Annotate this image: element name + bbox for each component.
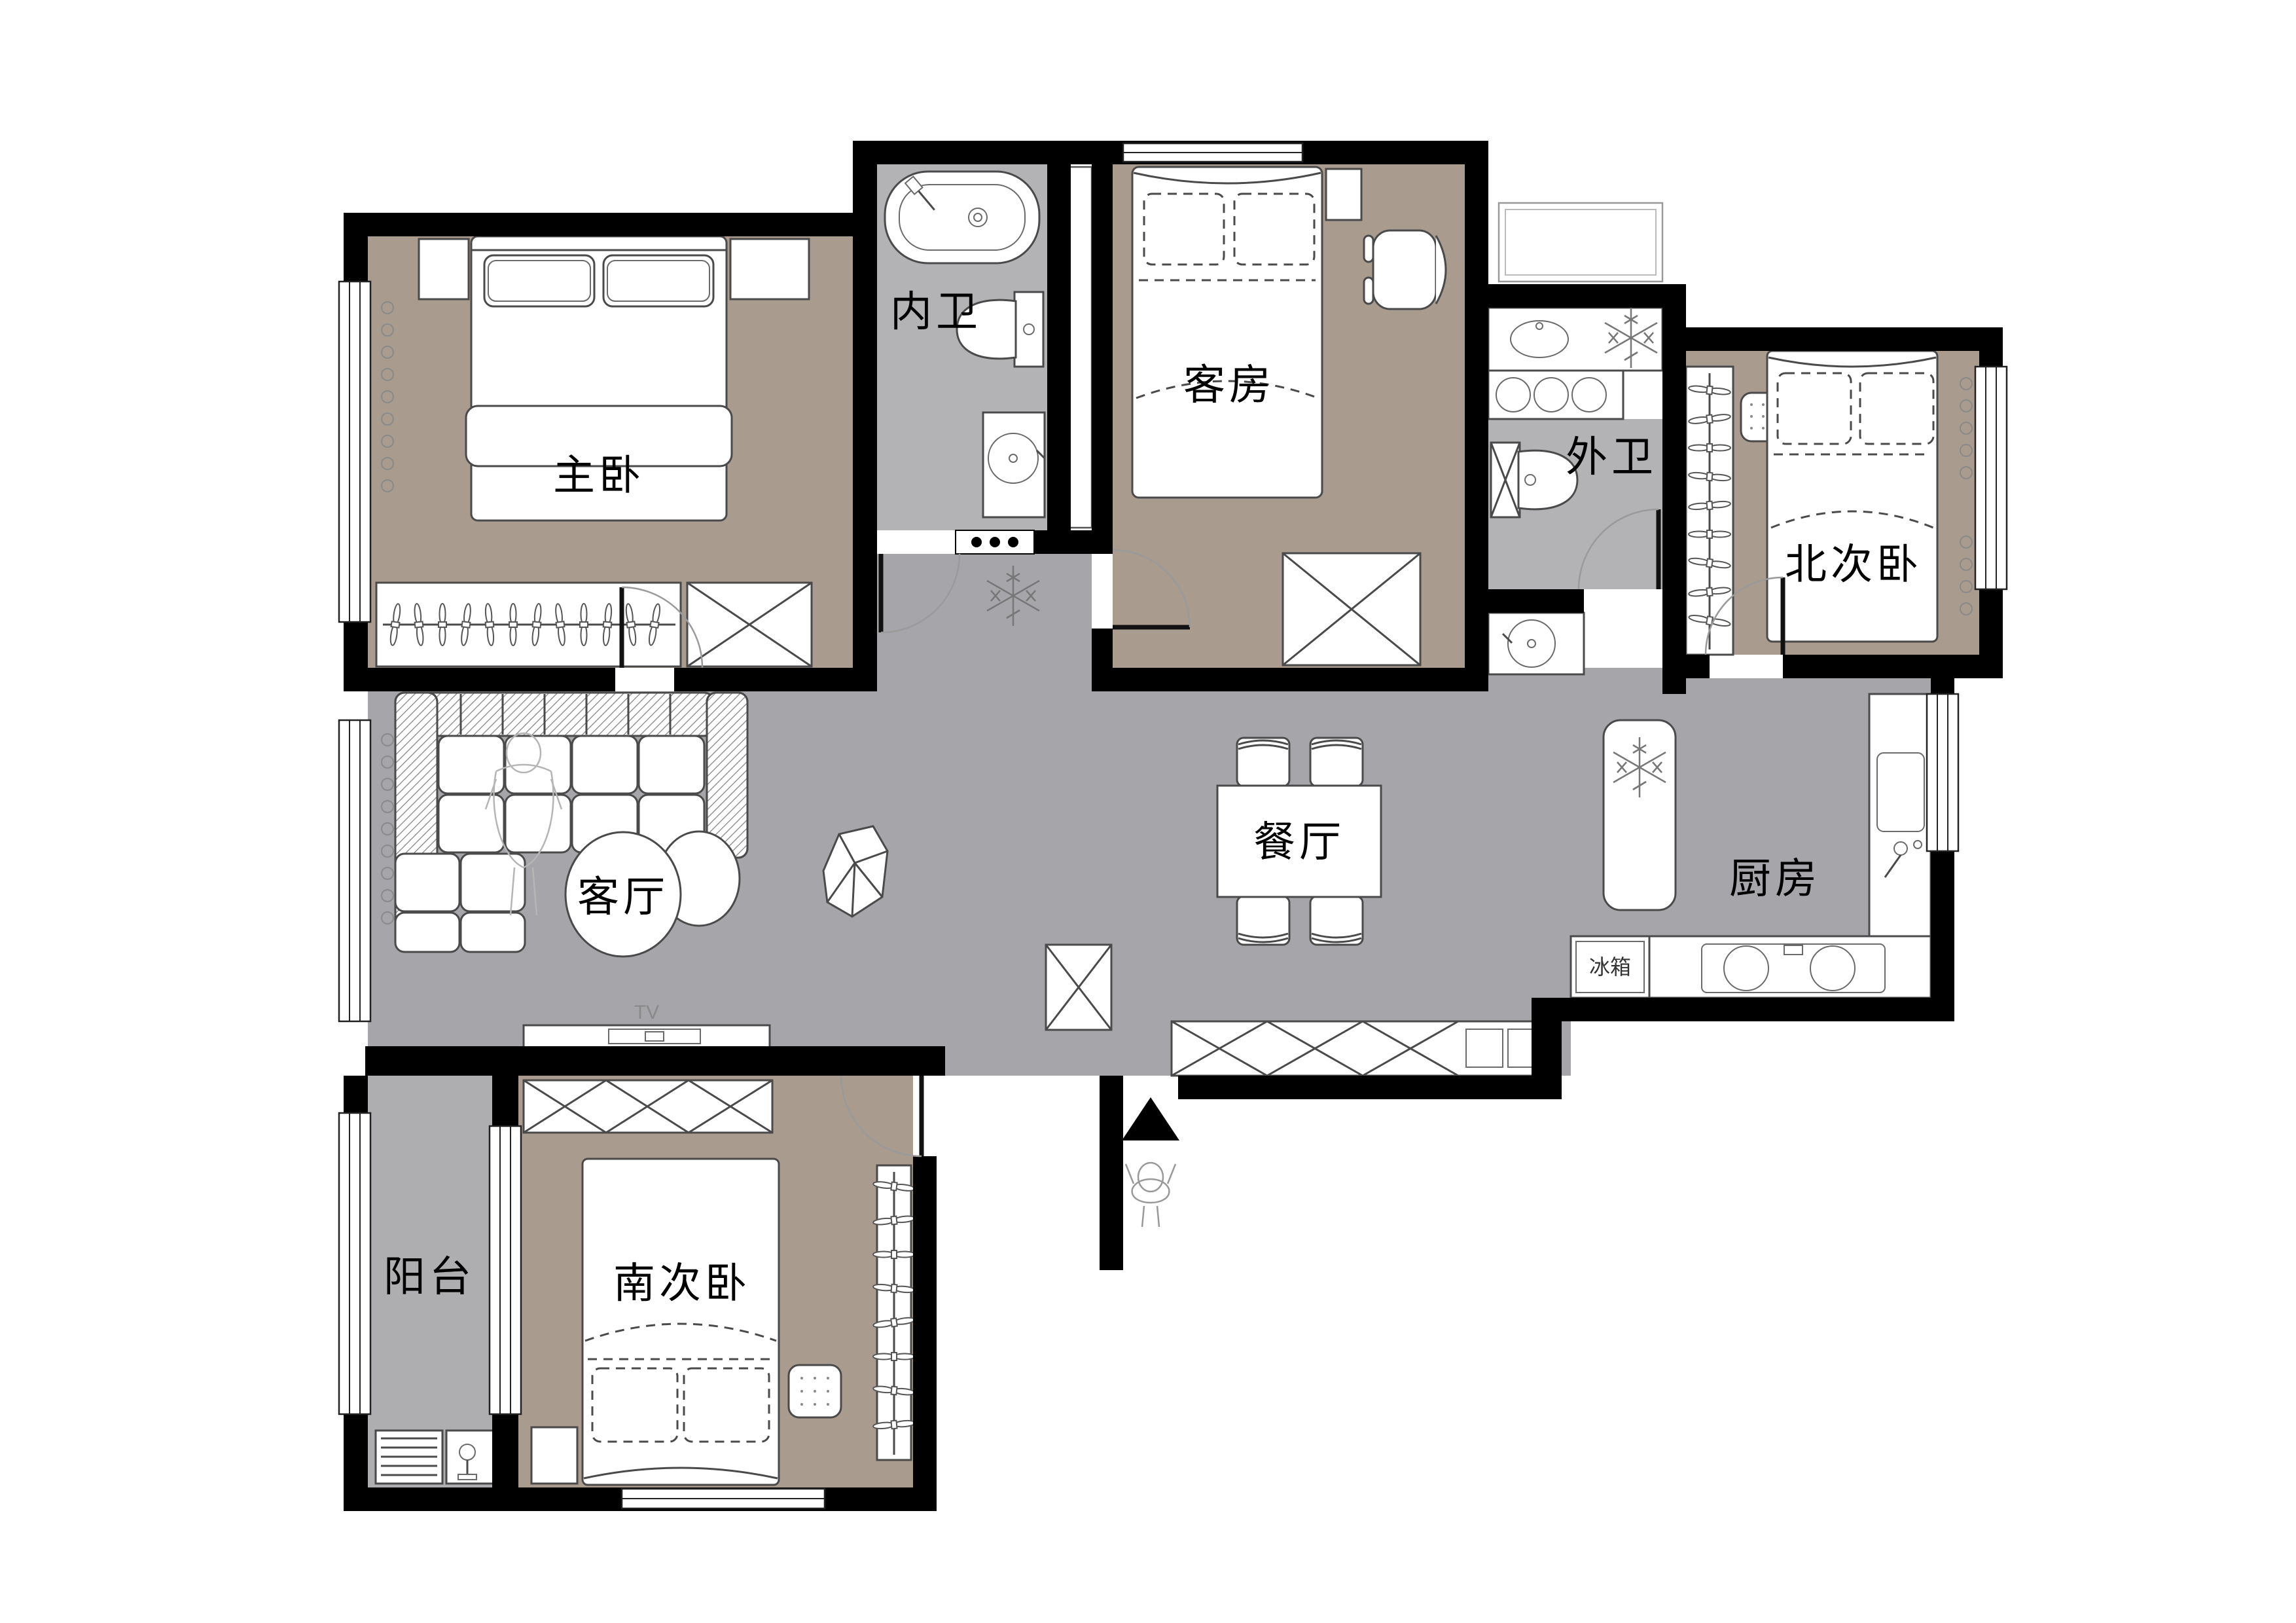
kitchen-counter-right: [1869, 694, 1931, 936]
guest-closet: [1283, 553, 1420, 665]
nightstand: [730, 239, 809, 299]
sideboard-cabinets: [1172, 1021, 1554, 1076]
tv-bench: [524, 1025, 770, 1048]
nightstand: [419, 239, 469, 299]
pouf: [789, 1365, 841, 1417]
fridge: 冰箱: [1571, 936, 1649, 998]
room-balcony: [376, 1431, 497, 1484]
person-figure: [1126, 1163, 1175, 1227]
guest-bed: [1132, 167, 1322, 498]
label-guest: 客房: [1183, 361, 1275, 409]
dining-chair: [1237, 738, 1289, 786]
single-bed: [1767, 351, 1937, 642]
wash-basin: [1488, 613, 1584, 674]
window: [622, 1489, 825, 1508]
wall-niche: [956, 530, 1034, 554]
window: [339, 282, 370, 622]
duct-shaft: [1069, 167, 1092, 528]
dining-chair: [1310, 738, 1363, 786]
label-dining: 餐厅: [1253, 818, 1345, 866]
dining-chair: [1310, 896, 1363, 945]
window: [339, 720, 370, 1021]
bedside-bench: [531, 1427, 577, 1484]
floor-plan-page: 冰箱: [0, 0, 2296, 1623]
south-closet: [872, 1165, 915, 1460]
stove: [1702, 944, 1885, 993]
label-south-bed: 南次卧: [613, 1260, 751, 1307]
label-outer-bath: 外卫: [1566, 433, 1657, 481]
window: [1975, 367, 2007, 589]
label-balcony: 阳台: [384, 1253, 475, 1300]
label-inner-bath: 内卫: [890, 288, 982, 335]
label-north-bed: 北次卧: [1785, 541, 1922, 588]
shoe-cabinet: [1046, 945, 1111, 1030]
sliding-window: [490, 1126, 521, 1414]
label-master: 主卧: [553, 452, 645, 499]
label-kitchen: 厨房: [1729, 855, 1821, 902]
top-cabinet: [524, 1080, 772, 1133]
floor-plan-drawing: 冰箱: [0, 0, 2296, 1623]
fridge-label: 冰箱: [1589, 955, 1631, 979]
dining-chair: [1237, 896, 1289, 945]
north-closet: [1686, 367, 1733, 655]
label-tv: TV: [634, 1002, 659, 1023]
desk-chair: [1364, 230, 1446, 309]
bathroom-vanity: [983, 412, 1045, 517]
room-north-bedroom: [1686, 351, 1972, 655]
balcony-window: [339, 1113, 370, 1414]
single-bed: [583, 1159, 779, 1485]
kitchen-counter-bottom: [1649, 936, 1931, 998]
laundry-sink: [446, 1431, 497, 1484]
bathtub: [885, 172, 1039, 263]
window: [1123, 143, 1302, 162]
dresser-bench: [687, 583, 812, 666]
floor-drain-grille: [376, 1431, 442, 1484]
entrance-arrow-icon: [1122, 1097, 1179, 1140]
kitchen-island: [1604, 720, 1676, 910]
label-living: 客厅: [577, 873, 669, 921]
washer-counter: [1488, 371, 1623, 419]
window: [1927, 694, 1958, 851]
nightstand: [1326, 169, 1361, 220]
exterior-platform: [1499, 203, 1662, 282]
hall-floor: [877, 554, 1092, 694]
